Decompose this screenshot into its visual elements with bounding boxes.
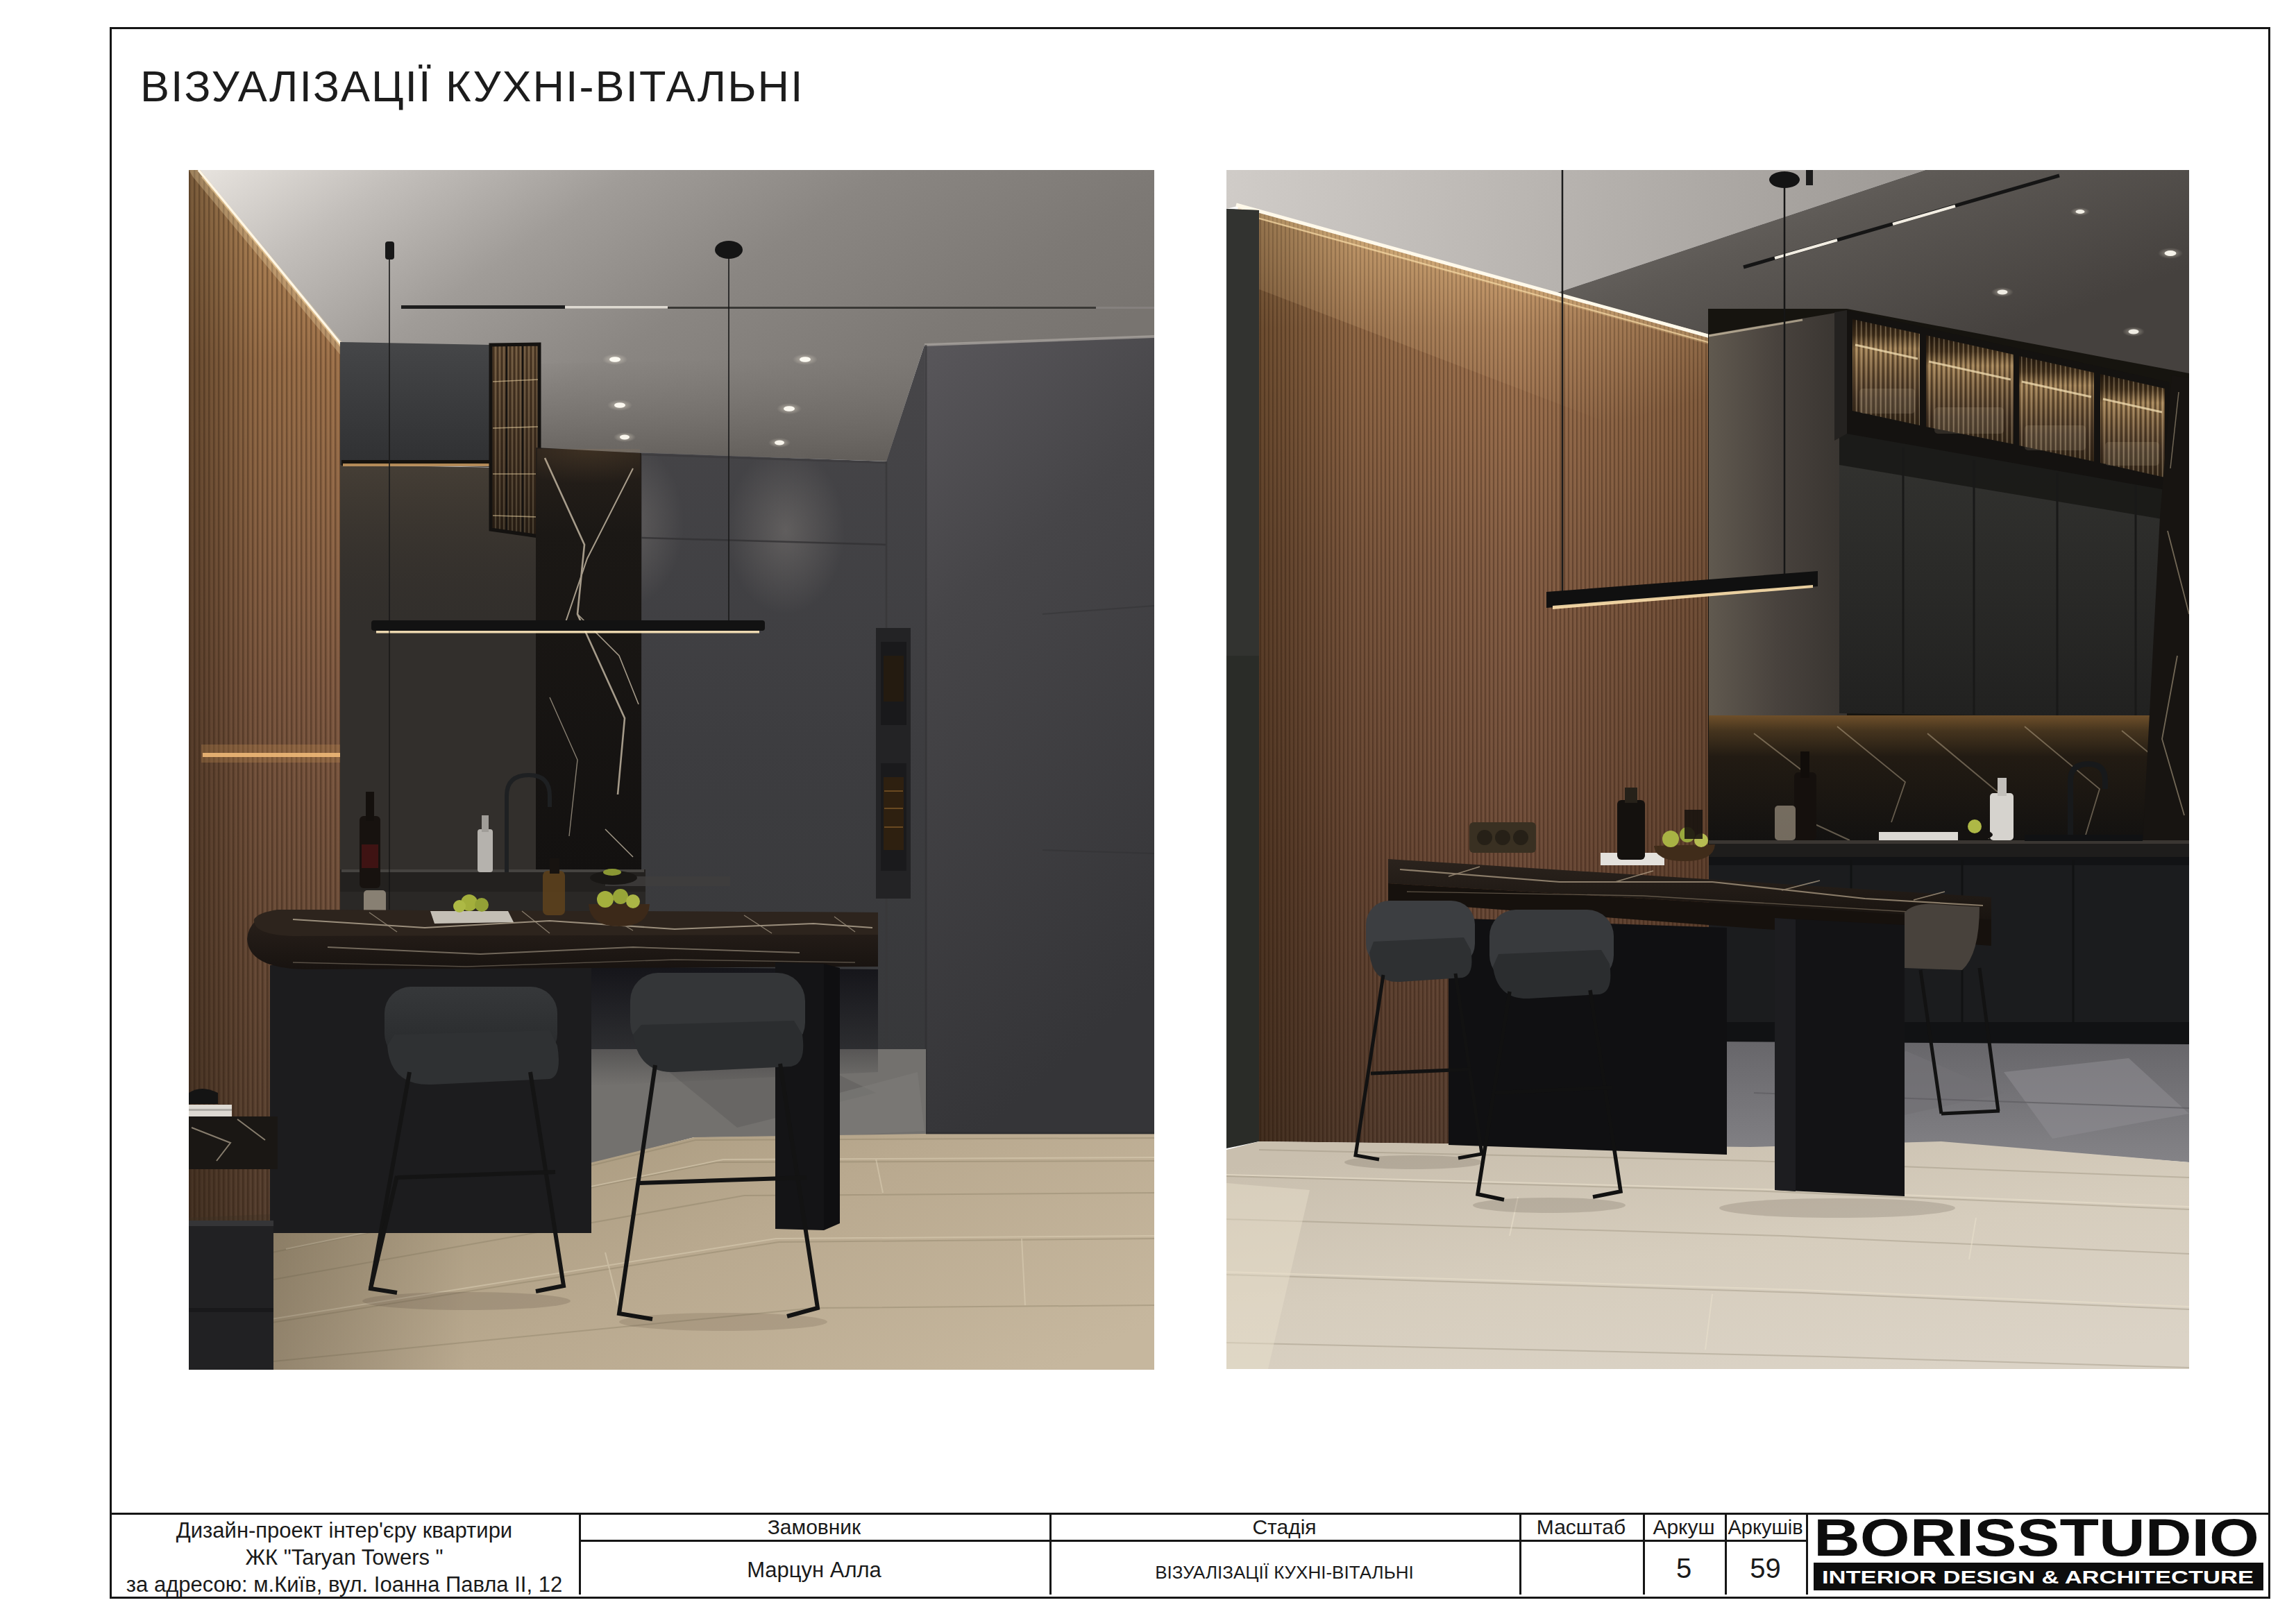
svg-text:BORISSTUDIO: BORISSTUDIO [1814, 1513, 2259, 1567]
svg-text:INTERIOR DESIGN & ARCHITECTURE: INTERIOR DESIGN & ARCHITECTURE [1822, 1567, 2254, 1587]
